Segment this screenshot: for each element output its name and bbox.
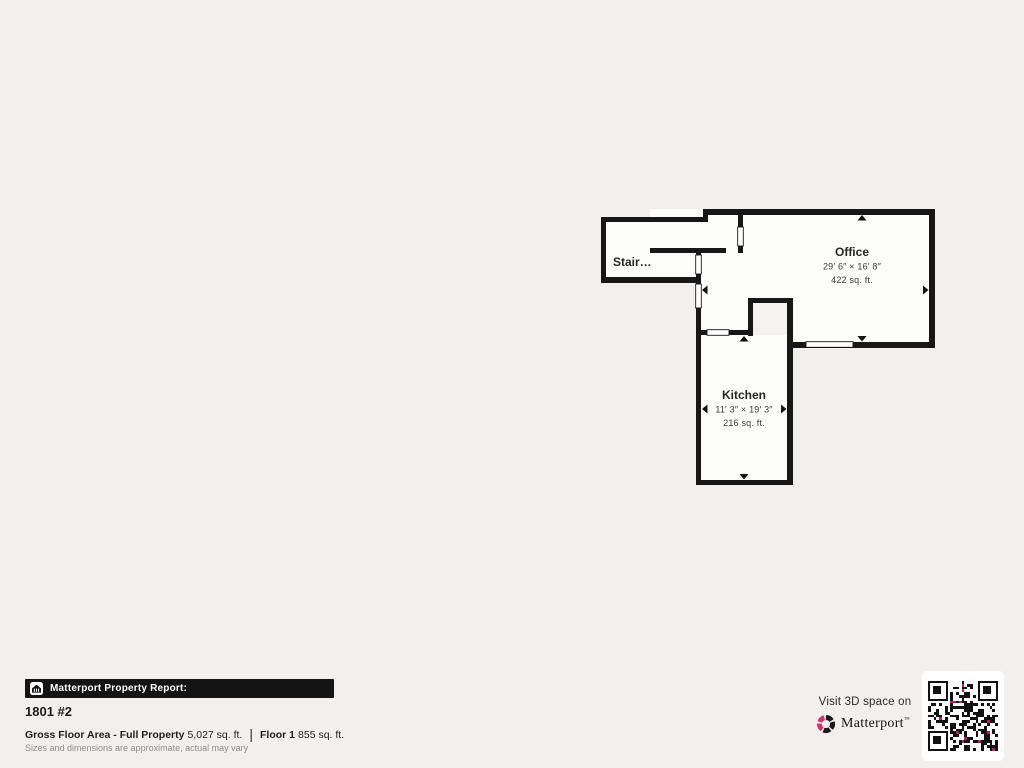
floor-label: Floor 1 bbox=[260, 729, 295, 741]
room-dims-office: 29′ 6″ × 16′ 8″ bbox=[823, 262, 882, 272]
qr-finder-icon bbox=[978, 681, 998, 701]
floor-area-line: Gross Floor Area - Full Property5,027 sq… bbox=[25, 726, 344, 742]
gross-floor-area-label: Gross Floor Area - Full Property bbox=[25, 729, 184, 741]
qr-card bbox=[922, 671, 1004, 761]
floor-plan: Stair… Office 29′ 6″ × 16′ 8″ 422 sq. ft… bbox=[0, 0, 1024, 768]
house-icon bbox=[30, 682, 43, 695]
divider: | bbox=[249, 726, 253, 742]
report-bar-title: Matterport Property Report: bbox=[50, 683, 187, 694]
matterport-wordmark: Matterport™ bbox=[841, 716, 910, 732]
matterport-logo: Matterport™ bbox=[816, 714, 910, 734]
floor-value: 855 sq. ft. bbox=[298, 729, 344, 741]
qr-code bbox=[928, 681, 998, 751]
room-label-office: Office bbox=[835, 245, 869, 259]
room-label-kitchen: Kitchen bbox=[722, 388, 766, 402]
unit-title: 1801 #2 bbox=[25, 704, 72, 719]
room-label-stair: Stair… bbox=[613, 255, 652, 269]
trademark-mark: ™ bbox=[904, 717, 910, 723]
visit-3d-space-text: Visit 3D space on bbox=[805, 696, 925, 708]
room-area-office: 422 sq. ft. bbox=[831, 275, 873, 285]
report-header-bar: Matterport Property Report: bbox=[25, 679, 334, 698]
qr-finder-icon bbox=[928, 681, 948, 701]
gross-floor-area-value: 5,027 sq. ft. bbox=[187, 729, 242, 741]
room-area-kitchen: 216 sq. ft. bbox=[723, 418, 765, 428]
disclaimer-text: Sizes and dimensions are approximate, ac… bbox=[25, 743, 248, 753]
matterport-pinwheel-icon bbox=[816, 714, 836, 734]
qr-finder-icon bbox=[928, 731, 948, 751]
room-dims-kitchen: 11′ 3″ × 19′ 3″ bbox=[715, 405, 773, 415]
